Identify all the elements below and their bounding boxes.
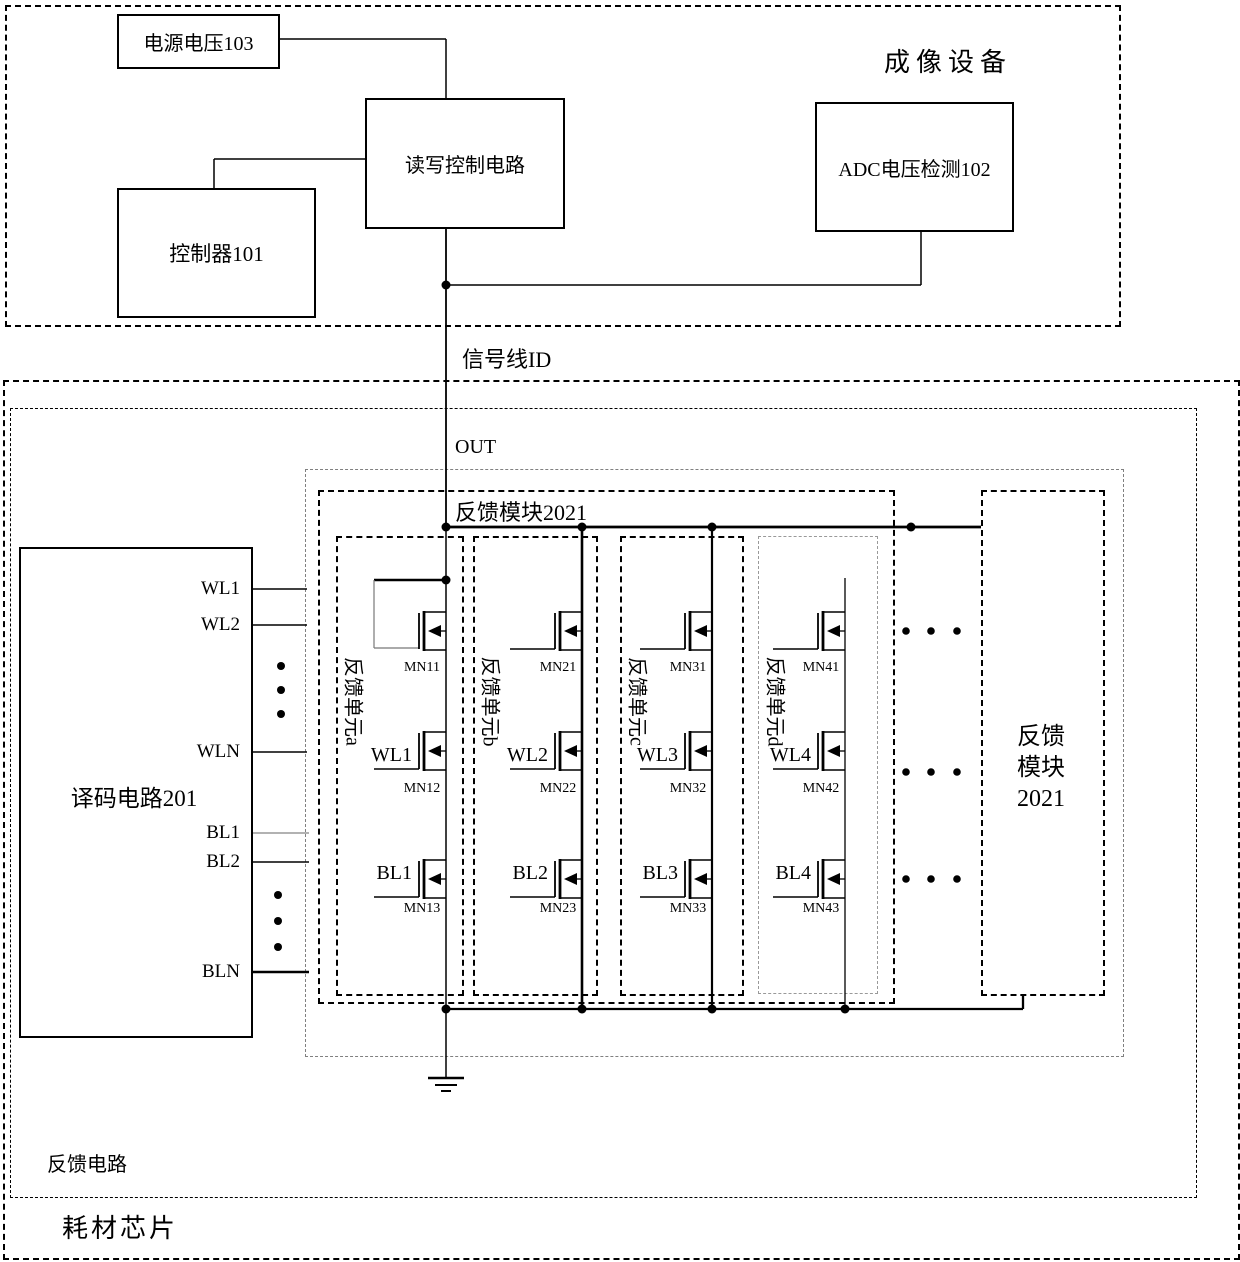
unit-c-wl-label: WL3 <box>608 744 678 767</box>
transistor-label-mn43: MN43 <box>791 901 851 917</box>
transistor-label-mn11: MN11 <box>392 660 452 676</box>
rw-control-label: 读写控制电路 <box>405 149 525 178</box>
transistor-label-mn21: MN21 <box>528 660 588 676</box>
adc-voltage-label: ADC电压检测102 <box>838 153 990 182</box>
patent-circuit-diagram: 电源电压103 读写控制电路 控制器101 ADC电压检测102 译码电路201… <box>0 0 1240 1262</box>
unit-d-bl-label: BL4 <box>741 862 811 885</box>
decoder-port-wln: WLN <box>140 741 240 763</box>
adc-voltage-box: ADC电压检测102 <box>815 102 1014 232</box>
transistor-label-mn32: MN32 <box>658 781 718 797</box>
transistor-label-mn23: MN23 <box>528 901 588 917</box>
unit-a-wl-label: WL1 <box>342 744 412 767</box>
rw-control-box: 读写控制电路 <box>365 98 565 229</box>
signal-line-label: 信号线ID <box>462 342 551 374</box>
decoder-port-wl2: WL2 <box>140 614 240 636</box>
transistor-label-mn12: MN12 <box>392 781 452 797</box>
feedback-module-right-label: 反馈 模块 2021 <box>981 722 1101 815</box>
unit-b-wl-label: WL2 <box>478 744 548 767</box>
unit-d-name: 反馈单元d <box>763 647 792 757</box>
out-label: OUT <box>455 436 496 459</box>
unit-a-name: 反馈单元a <box>341 647 370 757</box>
transistor-label-mn42: MN42 <box>791 781 851 797</box>
feedback-circuit-label: 反馈电路 <box>47 1148 127 1177</box>
unit-c-name: 反馈单元c <box>625 647 654 757</box>
feedback-module-title: 反馈模块2021 <box>455 495 587 527</box>
transistor-label-mn13: MN13 <box>392 901 452 917</box>
decoder-port-bln: BLN <box>140 961 240 983</box>
power-voltage-label: 电源电压103 <box>144 27 254 56</box>
transistor-label-mn22: MN22 <box>528 781 588 797</box>
unit-b-bl-label: BL2 <box>478 862 548 885</box>
power-voltage-box: 电源电压103 <box>117 14 280 69</box>
unit-b-name: 反馈单元b <box>478 647 507 757</box>
decoder-port-bl2: BL2 <box>140 851 240 873</box>
decoder-port-wl1: WL1 <box>140 578 240 600</box>
transistor-label-mn41: MN41 <box>791 660 851 676</box>
transistor-label-mn33: MN33 <box>658 901 718 917</box>
unit-a-bl-label: BL1 <box>342 862 412 885</box>
decoder-port-bl1: BL1 <box>140 822 240 844</box>
consumable-chip-label: 耗材芯片 <box>62 1208 178 1245</box>
decoder-title: 译码电路201 <box>19 779 249 813</box>
imaging-device-title: 成像设备 <box>884 42 1012 79</box>
unit-d-wl-label: WL4 <box>741 744 811 767</box>
transistor-label-mn31: MN31 <box>658 660 718 676</box>
controller-label: 控制器101 <box>169 238 264 268</box>
unit-c-bl-label: BL3 <box>608 862 678 885</box>
controller-box: 控制器101 <box>117 188 316 318</box>
